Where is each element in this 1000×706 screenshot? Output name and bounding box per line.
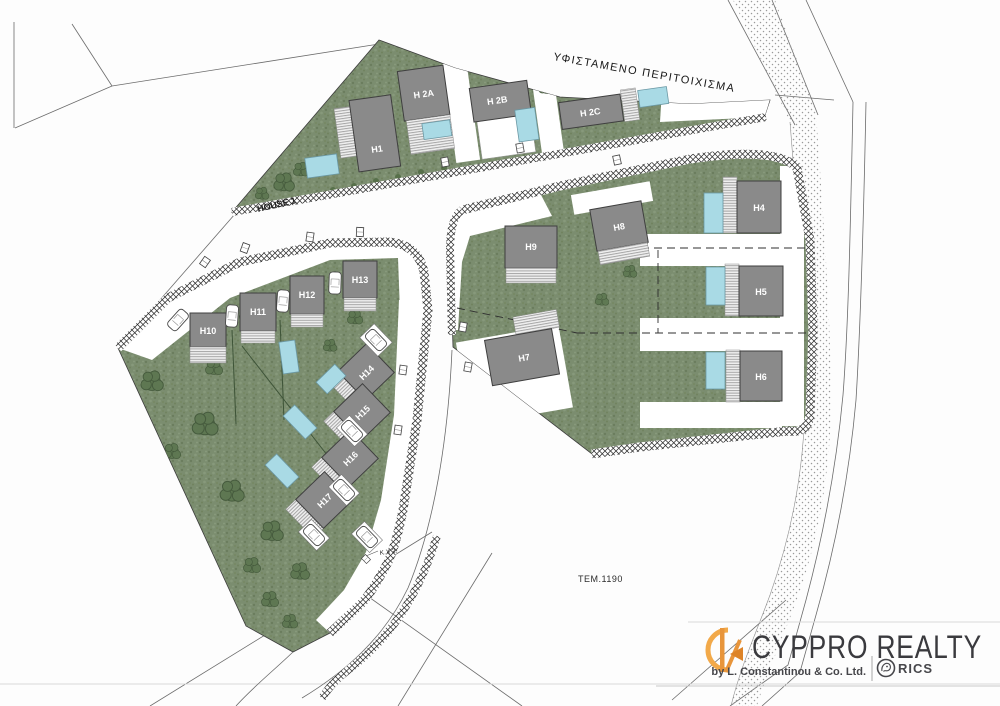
house-label-h10: H10	[200, 326, 217, 336]
house-label-h13: H13	[352, 275, 369, 285]
pool	[704, 193, 723, 233]
brand-name: CYPPRO REALTY	[752, 629, 982, 665]
house-label-h4: H4	[753, 203, 765, 213]
house-h11: H11	[240, 293, 276, 343]
site-plan-canvas: H1 H 2A H 2B H 2C HOUSE 1	[0, 0, 1000, 706]
house-label-h12: H12	[299, 290, 316, 300]
house-label-h1: H1	[371, 143, 384, 155]
house-label-h8: H8	[613, 221, 626, 233]
pool	[638, 87, 669, 108]
house-label-h6: H6	[755, 372, 767, 382]
house-h10: H10	[190, 313, 226, 363]
pool	[422, 120, 452, 140]
house-h13: H13	[343, 261, 377, 311]
house-label-h5: H5	[755, 287, 767, 297]
house-h9: H9	[505, 226, 557, 283]
house-label-h9: H9	[525, 242, 537, 252]
house-label-h11: H11	[250, 307, 266, 317]
pool	[515, 107, 539, 141]
pool	[706, 267, 725, 305]
rics-label: RICS	[898, 661, 933, 676]
pool	[305, 154, 339, 178]
parcel-number-label: ΤΕΜ.1190	[578, 574, 623, 584]
house-h8: H8	[590, 201, 651, 265]
house-label-h7: H7	[518, 352, 531, 364]
house-h12: H12	[290, 276, 324, 327]
brand-byline: by L. Constantinou & Co. Ltd.	[711, 666, 866, 678]
pool	[706, 352, 725, 389]
